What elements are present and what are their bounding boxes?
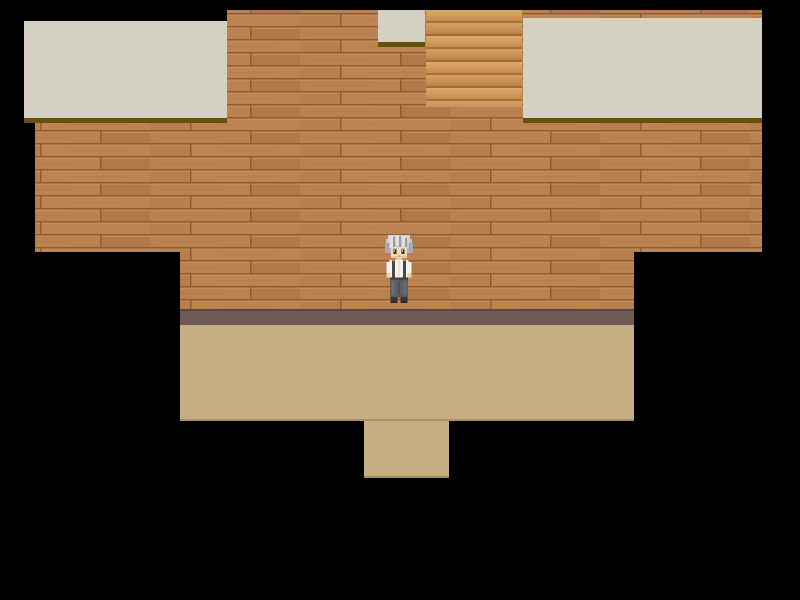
staircase[interactable] [426,10,522,107]
floor[interactable] [180,325,634,421]
character-sprite[interactable] [381,233,417,307]
ceiling-left [24,21,227,123]
floor-exit-south[interactable] [364,421,449,478]
ceiling-right [523,18,762,123]
ceiling-doorway-top [378,10,425,47]
game-viewport[interactable] [0,0,800,600]
baseboard [180,309,634,325]
gray-haired-man-sprite [381,233,417,307]
